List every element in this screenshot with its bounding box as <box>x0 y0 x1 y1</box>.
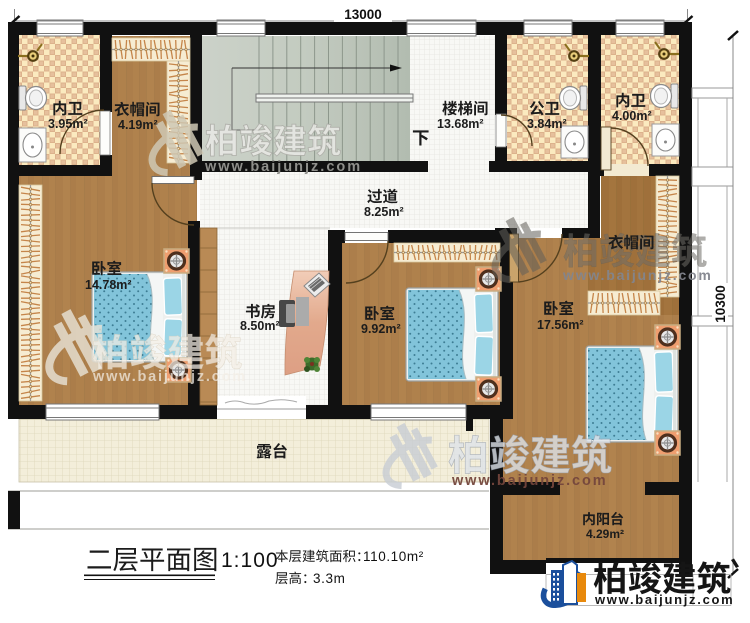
svg-text:1:100: 1:100 <box>221 549 279 572</box>
svg-text:3.84m²: 3.84m² <box>527 117 567 131</box>
svg-text:110.10m²: 110.10m² <box>363 549 424 564</box>
svg-text:www.baijunjz.com: www.baijunjz.com <box>451 473 608 489</box>
svg-text:10300: 10300 <box>713 285 728 323</box>
svg-text:14.78m²: 14.78m² <box>85 278 132 292</box>
svg-text:www.baijunjz.com: www.baijunjz.com <box>562 267 713 283</box>
svg-text:4.19m²: 4.19m² <box>118 118 158 132</box>
svg-text:3.95m²: 3.95m² <box>48 117 88 131</box>
svg-text:9.92m²: 9.92m² <box>361 322 401 336</box>
svg-text:www.baijunjz.com: www.baijunjz.com <box>594 592 734 607</box>
svg-text:13000: 13000 <box>344 7 382 22</box>
svg-text:17.56m²: 17.56m² <box>537 318 584 332</box>
svg-text:3.3m: 3.3m <box>313 571 345 586</box>
svg-text:8.50m²: 8.50m² <box>240 319 280 333</box>
svg-text:8.25m²: 8.25m² <box>364 205 404 219</box>
svg-text:www.baijunjz.com: www.baijunjz.com <box>92 369 247 385</box>
svg-text:13.68m²: 13.68m² <box>437 117 484 131</box>
svg-text:www.baijunjz.com: www.baijunjz.com <box>204 159 362 175</box>
svg-text:4.00m²: 4.00m² <box>612 109 652 123</box>
svg-text:4.29m²: 4.29m² <box>586 527 624 541</box>
